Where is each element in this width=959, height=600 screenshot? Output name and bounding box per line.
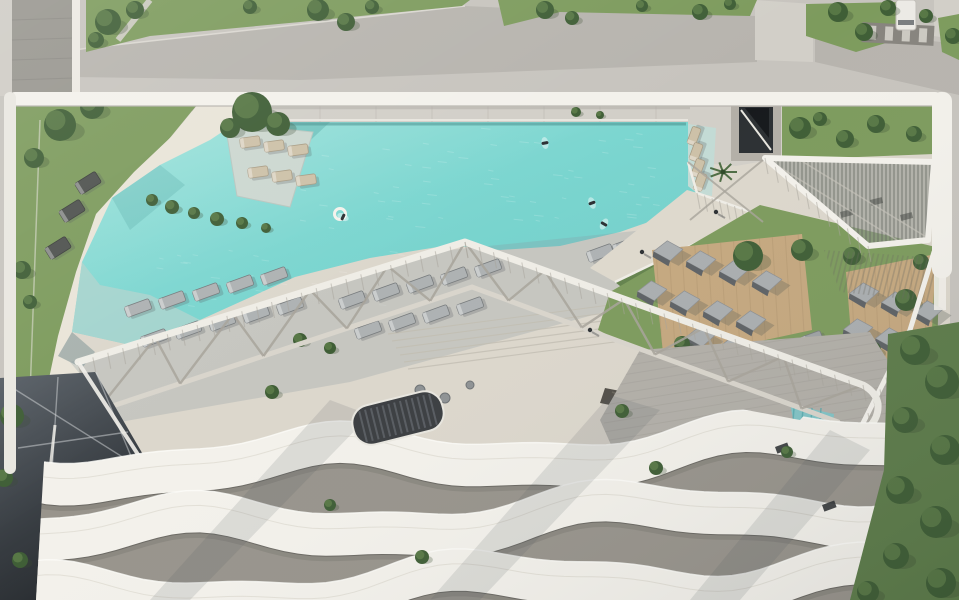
scene-svg [0, 0, 959, 600]
lighting-layer [0, 0, 959, 600]
aerial-render [0, 0, 959, 600]
